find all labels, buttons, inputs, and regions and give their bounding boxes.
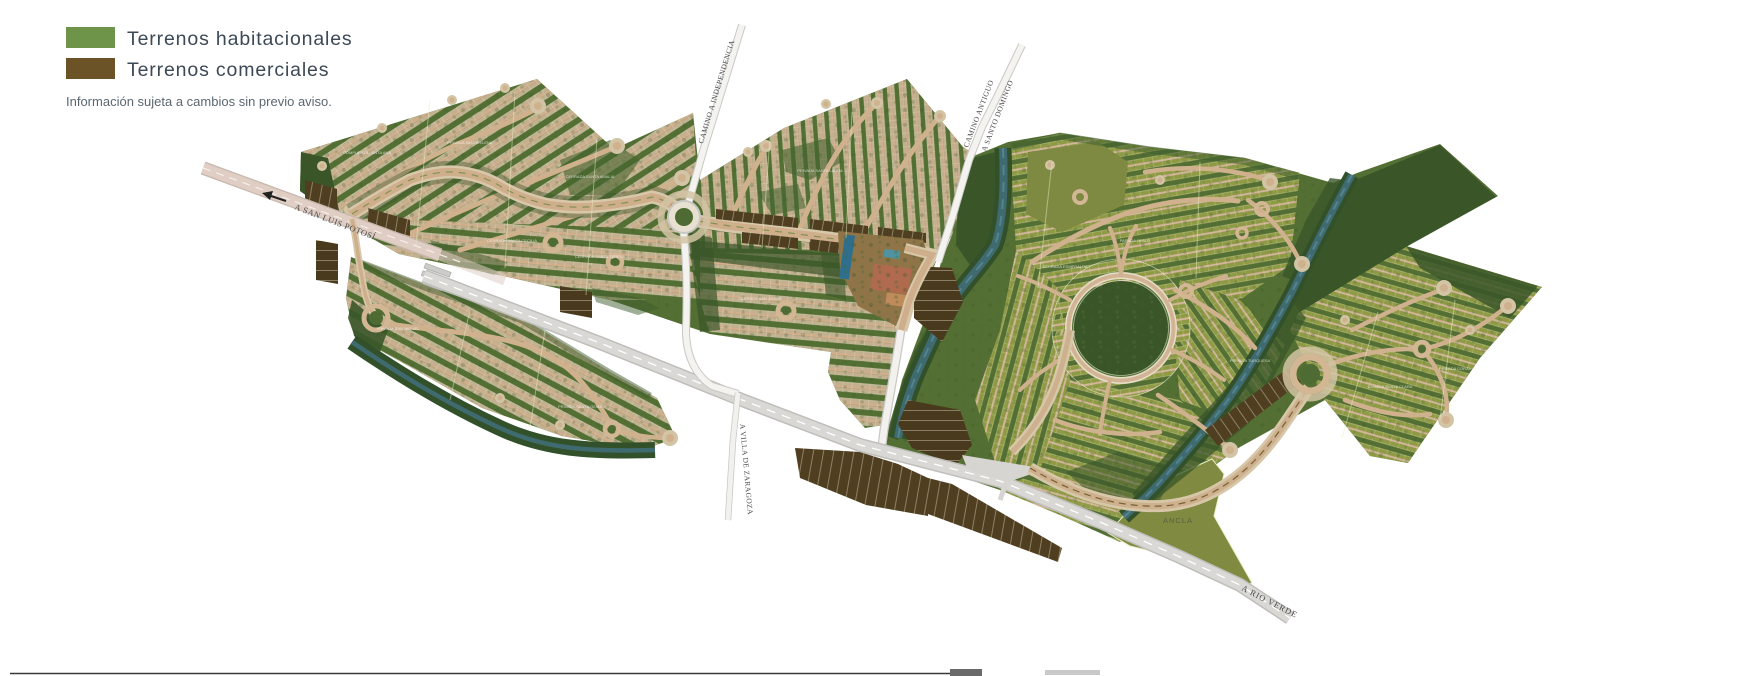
svg-text:PRIVADA SANTA LAURA: PRIVADA SANTA LAURA xyxy=(797,168,843,173)
svg-text:Información sujeta a cambios s: Información sujeta a cambios sin previo … xyxy=(66,94,332,109)
svg-text:COMPUERTA SANTA ANA: COMPUERTA SANTA ANA xyxy=(343,150,391,155)
svg-text:ANCLA: ANCLA xyxy=(1163,516,1193,525)
svg-text:PRIVADA TURQUESA: PRIVADA TURQUESA xyxy=(1230,358,1271,363)
svg-text:CERRADA SANTA CECILIA: CERRADA SANTA CECILIA xyxy=(487,238,537,243)
svg-text:CAÑADA SANTA CLARA: CAÑADA SANTA CLARA xyxy=(1368,384,1413,389)
svg-text:A VILLA DE ZARAGOZA: A VILLA DE ZARAGOZA xyxy=(738,423,755,515)
svg-text:Terrenos comerciales: Terrenos comerciales xyxy=(127,59,329,81)
svg-text:CERRADA SANTA AMALIA: CERRADA SANTA AMALIA xyxy=(566,174,615,179)
svg-text:CERRADA ESMERALDA: CERRADA ESMERALDA xyxy=(1042,264,1087,269)
svg-text:CAMINO A INDEPENDENCIA: CAMINO A INDEPENDENCIA xyxy=(696,39,736,145)
svg-text:PRIVADA SAN MIGUEL: PRIVADA SAN MIGUEL xyxy=(377,326,421,331)
svg-text:PARADA OPALO: PARADA OPALO xyxy=(1120,238,1151,243)
svg-text:PRIVADA SANTA ELENA: PRIVADA SANTA ELENA xyxy=(447,140,493,145)
svg-text:PRIVADA CORAL: PRIVADA CORAL xyxy=(1439,366,1472,371)
svg-text:A RIO VERDE: A RIO VERDE xyxy=(1240,583,1299,620)
svg-text:CERRADA SANTA TERESA: CERRADA SANTA TERESA xyxy=(575,254,626,259)
svg-text:Terrenos habitacionales: Terrenos habitacionales xyxy=(127,28,353,50)
svg-text:CERRADA SAN JAVIER: CERRADA SAN JAVIER xyxy=(738,296,782,301)
svg-text:PRIVADA SANTA GEMA: PRIVADA SANTA GEMA xyxy=(558,404,602,409)
